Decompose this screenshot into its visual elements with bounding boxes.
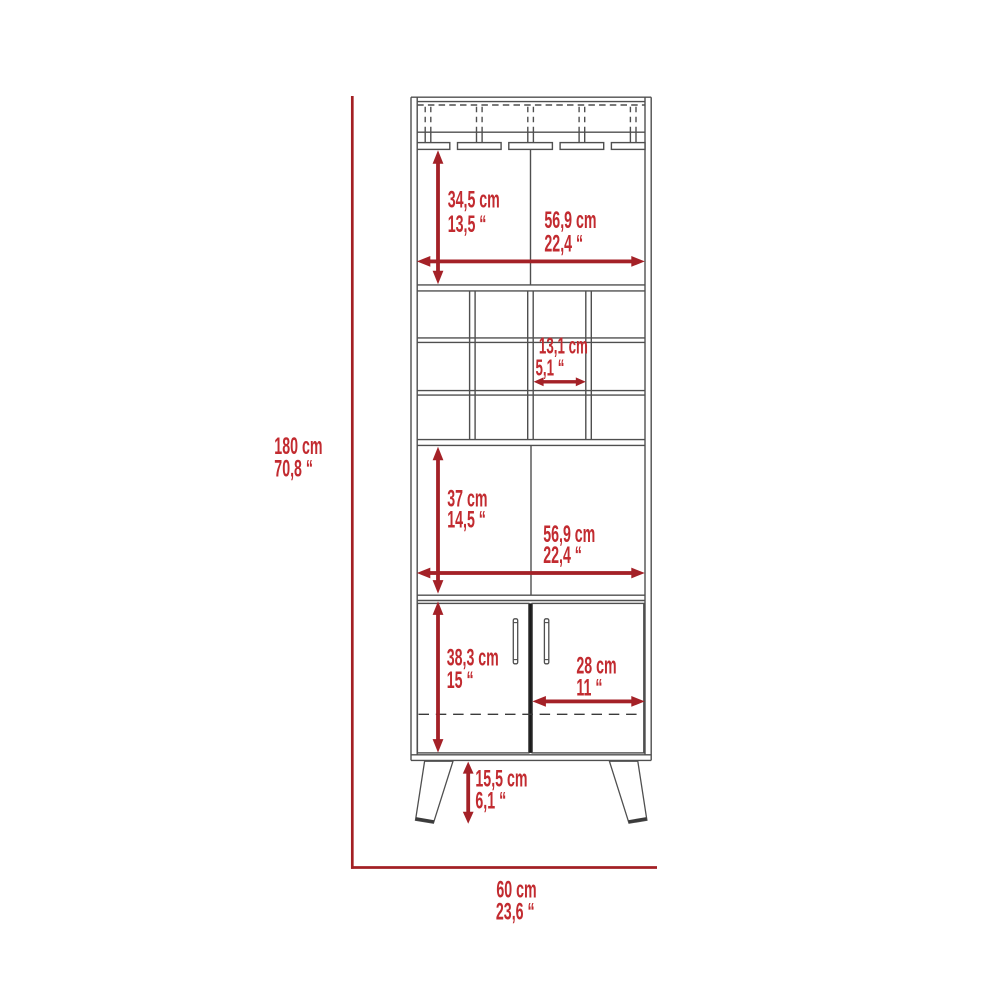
svg-text:5,1 “: 5,1 “ (536, 355, 565, 381)
svg-text:23,6 “: 23,6 “ (496, 899, 535, 926)
svg-text:34,5 cm: 34,5 cm (448, 187, 500, 214)
svg-text:15 “: 15 “ (447, 667, 474, 694)
svg-text:70,8 “: 70,8 “ (274, 456, 313, 483)
svg-text:11 “: 11 “ (576, 675, 602, 702)
svg-text:22,4 “: 22,4 “ (543, 542, 582, 569)
svg-text:22,4 “: 22,4 “ (544, 231, 583, 258)
svg-text:6,1 “: 6,1 “ (475, 788, 506, 815)
svg-text:14,5 “: 14,5 “ (447, 507, 486, 534)
svg-text:13,5 “: 13,5 “ (448, 211, 487, 238)
